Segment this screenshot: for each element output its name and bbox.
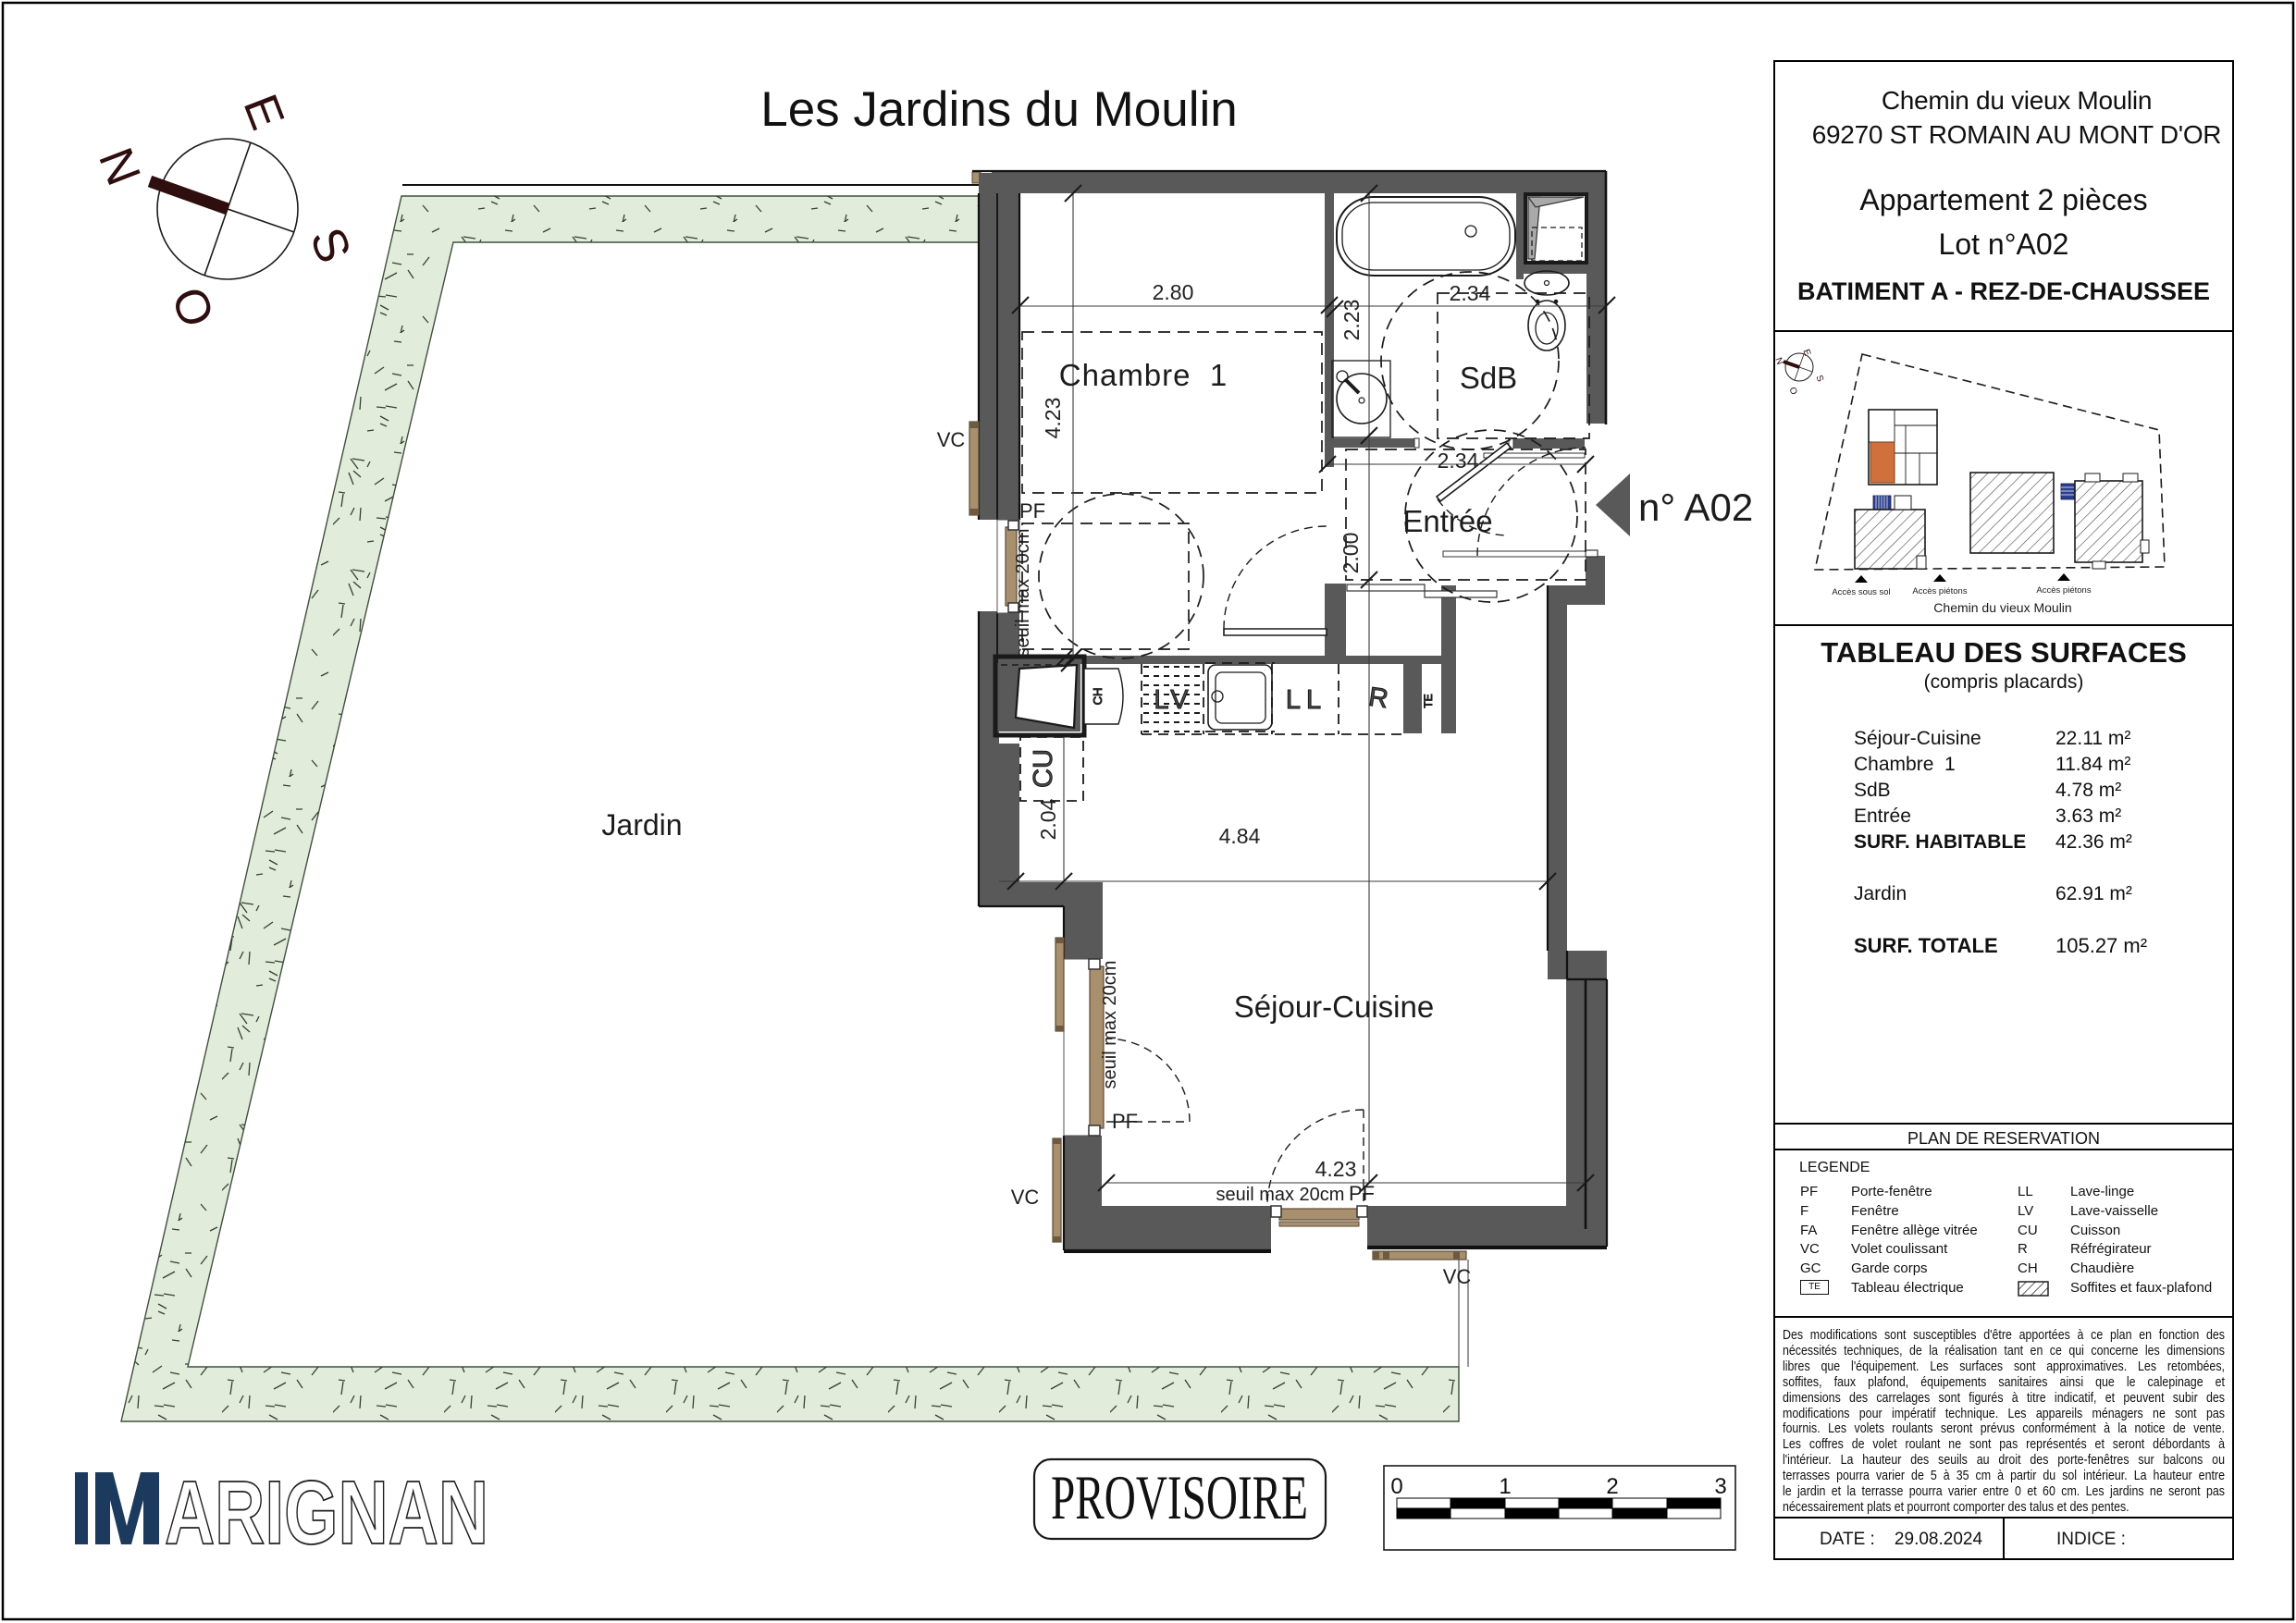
svg-text:0: 0 [1390,1474,1402,1499]
svg-text:Chambre 1: Chambre 1 [1059,358,1228,392]
svg-text:LV: LV [1154,685,1191,715]
svg-text:R: R [1367,682,1390,715]
svg-text:3: 3 [1714,1474,1726,1499]
svg-text:seuil max 20cm: seuil max 20cm [1216,1185,1345,1205]
svg-text:2.23: 2.23 [1339,300,1364,341]
svg-text:2: 2 [1606,1474,1618,1499]
svg-text:4.23: 4.23 [1041,398,1065,439]
svg-text:4.84: 4.84 [1219,824,1261,848]
svg-text:Accès piétons: Accès piétons [1912,586,1967,596]
svg-text:E: E [1800,348,1812,357]
svg-text:Accès sous sol: Accès sous sol [1832,587,1890,597]
svg-text:PROVISOIRE: PROVISOIRE [1051,1462,1308,1532]
svg-text:2.34: 2.34 [1450,281,1491,305]
svg-text:PF: PF [1019,499,1045,523]
svg-text:TE: TE [1422,694,1435,707]
svg-text:4.23: 4.23 [1315,1157,1357,1181]
svg-text:CH: CH [1091,688,1105,706]
svg-text:PF: PF [1349,1182,1375,1205]
svg-text:CU: CU [1029,749,1058,788]
svg-text:N: N [88,141,151,192]
svg-text:VC: VC [937,428,966,451]
svg-text:Accès piétons: Accès piétons [2036,585,2091,596]
svg-text:LL: LL [1286,685,1327,715]
svg-text:n° A02: n° A02 [1638,486,1753,529]
svg-text:2.80: 2.80 [1153,280,1194,304]
svg-text:O: O [1786,386,1798,396]
svg-text:Jardin: Jardin [601,808,682,842]
svg-text:VC: VC [1011,1186,1040,1209]
svg-text:2.00: 2.00 [1339,533,1363,574]
svg-text:Entrée: Entrée [1402,504,1492,538]
svg-text:Séjour-Cuisine: Séjour-Cuisine [1234,990,1434,1024]
svg-text:SdB: SdB [1460,361,1517,395]
svg-text:2.34: 2.34 [1438,449,1479,473]
svg-text:O: O [161,280,225,335]
svg-text:S: S [300,221,362,270]
svg-text:VC: VC [1443,1265,1472,1288]
svg-text:ARIGNAN: ARIGNAN [165,1462,488,1563]
svg-text:1: 1 [1499,1474,1511,1499]
svg-text:E: E [233,88,295,137]
svg-text:seuil max 20cm: seuil max 20cm [1100,961,1120,1089]
svg-text:seuil max 20cm: seuil max 20cm [1013,529,1033,658]
svg-text:Chemin du vieux Moulin: Chemin du vieux Moulin [1933,600,2071,615]
svg-text:S: S [1813,374,1825,383]
svg-text:PF: PF [1112,1110,1138,1133]
svg-text:2.04: 2.04 [1036,798,1060,840]
